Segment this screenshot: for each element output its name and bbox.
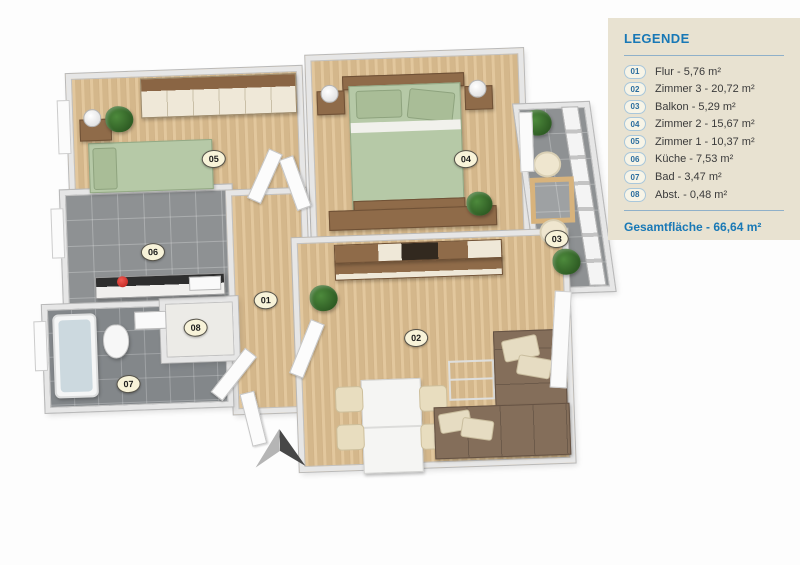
legend-item-label: Zimmer 3 - 20,72 m² — [655, 83, 755, 95]
legend-item-number: 05 — [624, 135, 646, 149]
legend-item-number: 03 — [624, 100, 646, 114]
window — [50, 208, 65, 258]
legend-item-number: 06 — [624, 152, 646, 166]
legend-item: 03 Balkon - 5,29 m² — [624, 100, 786, 113]
pillow — [92, 147, 117, 190]
window — [33, 321, 48, 371]
sofa-pillow — [516, 354, 553, 380]
legend-item-number: 04 — [624, 117, 646, 131]
legend-item-label: Abst. - 0,48 m² — [655, 189, 727, 201]
legend-item: 05 Zimmer 1 - 10,37 m² — [624, 135, 786, 148]
pillow — [355, 89, 402, 119]
bed-single — [88, 139, 214, 193]
legend-item: 06 Küche - 7,53 m² — [624, 153, 786, 166]
dining-chair — [335, 386, 364, 413]
balcony-table — [530, 176, 576, 224]
legend-item: 07 Bad - 3,47 m² — [624, 171, 786, 184]
bathtub — [52, 313, 99, 398]
legend-item-label: Küche - 7,53 m² — [655, 153, 733, 165]
legend-total-area: Gesamtfläche - 66,64 m² — [624, 220, 786, 234]
legend-item: 01 Flur - 5,76 m² — [624, 65, 786, 78]
legend-item: 08 Abst. - 0,48 m² — [624, 188, 786, 201]
legend-item-label: Zimmer 2 - 15,67 m² — [655, 118, 755, 130]
legend-item-number: 02 — [624, 82, 646, 96]
legend-divider — [624, 210, 784, 211]
legend-item: 02 Zimmer 3 - 20,72 m² — [624, 83, 786, 96]
legend-item-label: Balkon - 5,29 m² — [655, 101, 736, 113]
sofa-pillow — [460, 417, 494, 441]
legend-item-number: 01 — [624, 65, 646, 79]
legend-item: 04 Zimmer 2 - 15,67 m² — [624, 118, 786, 131]
legend-item-label: Flur - 5,76 m² — [655, 66, 721, 78]
bed-double — [348, 82, 464, 210]
north-arrow-right-wing — [279, 428, 305, 467]
north-arrow-left-wing — [254, 429, 280, 468]
legend-panel: LEGENDE 01 Flur - 5,76 m² 02 Zimmer 3 - … — [608, 18, 800, 240]
pillow — [407, 88, 456, 123]
legend-item-label: Bad - 3,47 m² — [655, 171, 722, 183]
window — [518, 112, 534, 172]
bed-sheet — [351, 119, 461, 133]
legend-item-label: Zimmer 1 - 10,37 m² — [655, 136, 755, 148]
window — [57, 100, 72, 154]
legend-divider — [624, 55, 784, 56]
side-shelf — [448, 359, 495, 401]
kitchen-sink — [189, 276, 221, 291]
north-arrow-icon — [254, 428, 305, 468]
wardrobe — [140, 73, 297, 118]
dining-chair — [336, 424, 365, 451]
sofa — [434, 403, 572, 460]
legend-item-number: 07 — [624, 170, 646, 184]
legend-title: LEGENDE — [624, 31, 786, 46]
legend-item-number: 08 — [624, 188, 646, 202]
dining-table — [361, 378, 424, 474]
bathroom-sink — [134, 311, 167, 330]
floor-plan-page: 05 06 04 03 01 08 07 02 LEGENDE 01 Flur … — [0, 0, 800, 565]
